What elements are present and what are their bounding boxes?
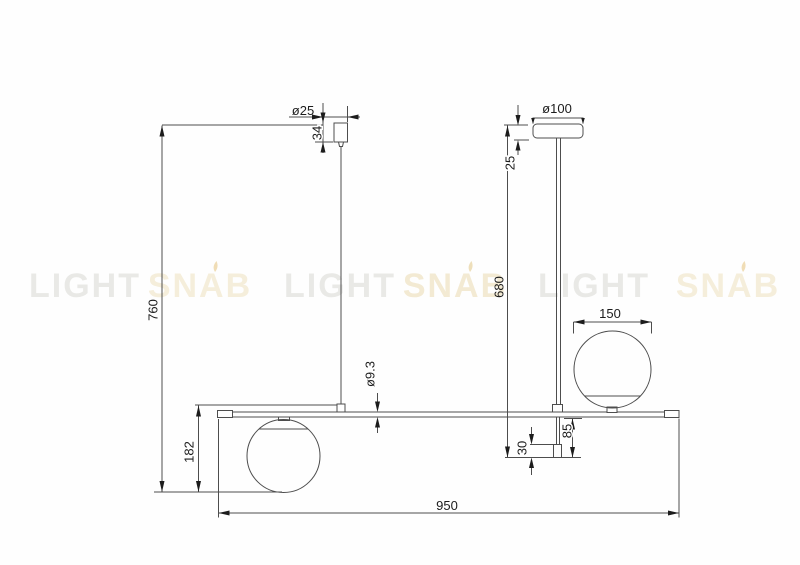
label-large-canopy-height: 25 (502, 156, 517, 170)
arrowhead-down (505, 447, 510, 458)
label-small-canopy-height: 34 (309, 126, 324, 140)
dimension-labels: ø25 34 ø100 25 760 680 ø9.3 150 182 30 8… (145, 101, 620, 513)
arrowhead-down (321, 113, 326, 124)
small-canopy-nipple (339, 142, 344, 147)
label-large-canopy-diameter: ø100 (542, 101, 572, 116)
bar-left-end-cap (218, 411, 233, 418)
dimension-left-shade-drop (195, 405, 337, 492)
label-bar-diameter: ø9.3 (362, 361, 377, 387)
arrowhead-up (516, 140, 521, 151)
arrowhead-down (160, 481, 165, 492)
left-glass-sphere (247, 420, 320, 493)
label-rod-drop: 680 (491, 276, 506, 298)
dimension-total-height (154, 125, 323, 492)
arrowhead-up (196, 406, 201, 417)
label-bar-length: 950 (436, 498, 458, 513)
arrowhead-up (160, 126, 165, 137)
label-left-shade-drop: 182 (181, 441, 196, 463)
arrowhead-up (505, 126, 510, 137)
arrowhead-down (516, 115, 521, 126)
label-below-bar-drop: 85 (559, 424, 574, 438)
watermark-word: LIGHT (284, 267, 396, 305)
end-cylinder (554, 445, 562, 458)
dimension-large-canopy-diameter (531, 118, 585, 124)
arrowhead-right (641, 320, 652, 325)
watermark-word: LIGHT (29, 267, 141, 305)
arrowhead-down (375, 402, 380, 413)
arrowhead-up (529, 458, 534, 469)
arrowhead-down (529, 434, 534, 445)
bar-right-end-cap (665, 411, 680, 418)
arrowhead-down (196, 481, 201, 492)
label-small-canopy-diameter: ø25 (292, 103, 314, 118)
arrowhead-right (668, 511, 679, 516)
drawing-svg: LIGHT SNAB LIGHT SNAB LIGHT SNAB (0, 0, 800, 565)
arrowhead-down (581, 118, 585, 124)
label-shade-diameter: 150 (599, 306, 621, 321)
cable-bar-connector (337, 404, 345, 412)
rod-bar-connector (553, 405, 563, 413)
arrowhead-left (219, 511, 230, 516)
arrowhead-left (574, 320, 585, 325)
arrowhead-up (321, 142, 326, 153)
watermark: LIGHT SNAB LIGHT SNAB LIGHT SNAB (29, 261, 780, 305)
label-total-height: 760 (145, 299, 160, 321)
arrowhead-down (570, 447, 575, 458)
watermark-word: SNAB (148, 267, 252, 305)
arrowhead-up (375, 417, 380, 428)
large-canopy (533, 124, 583, 138)
dimension-end-tip-length (529, 427, 556, 475)
arrowhead-left (348, 115, 359, 120)
dimension-bracket (533, 118, 583, 124)
label-end-tip-length: 30 (514, 441, 529, 455)
technical-drawing-page: LIGHT SNAB LIGHT SNAB LIGHT SNAB (0, 0, 800, 565)
watermark-word: LIGHT (538, 267, 650, 305)
small-canopy (334, 123, 348, 142)
watermark-word: SNAB (676, 267, 780, 305)
arrowhead-down (531, 118, 535, 124)
